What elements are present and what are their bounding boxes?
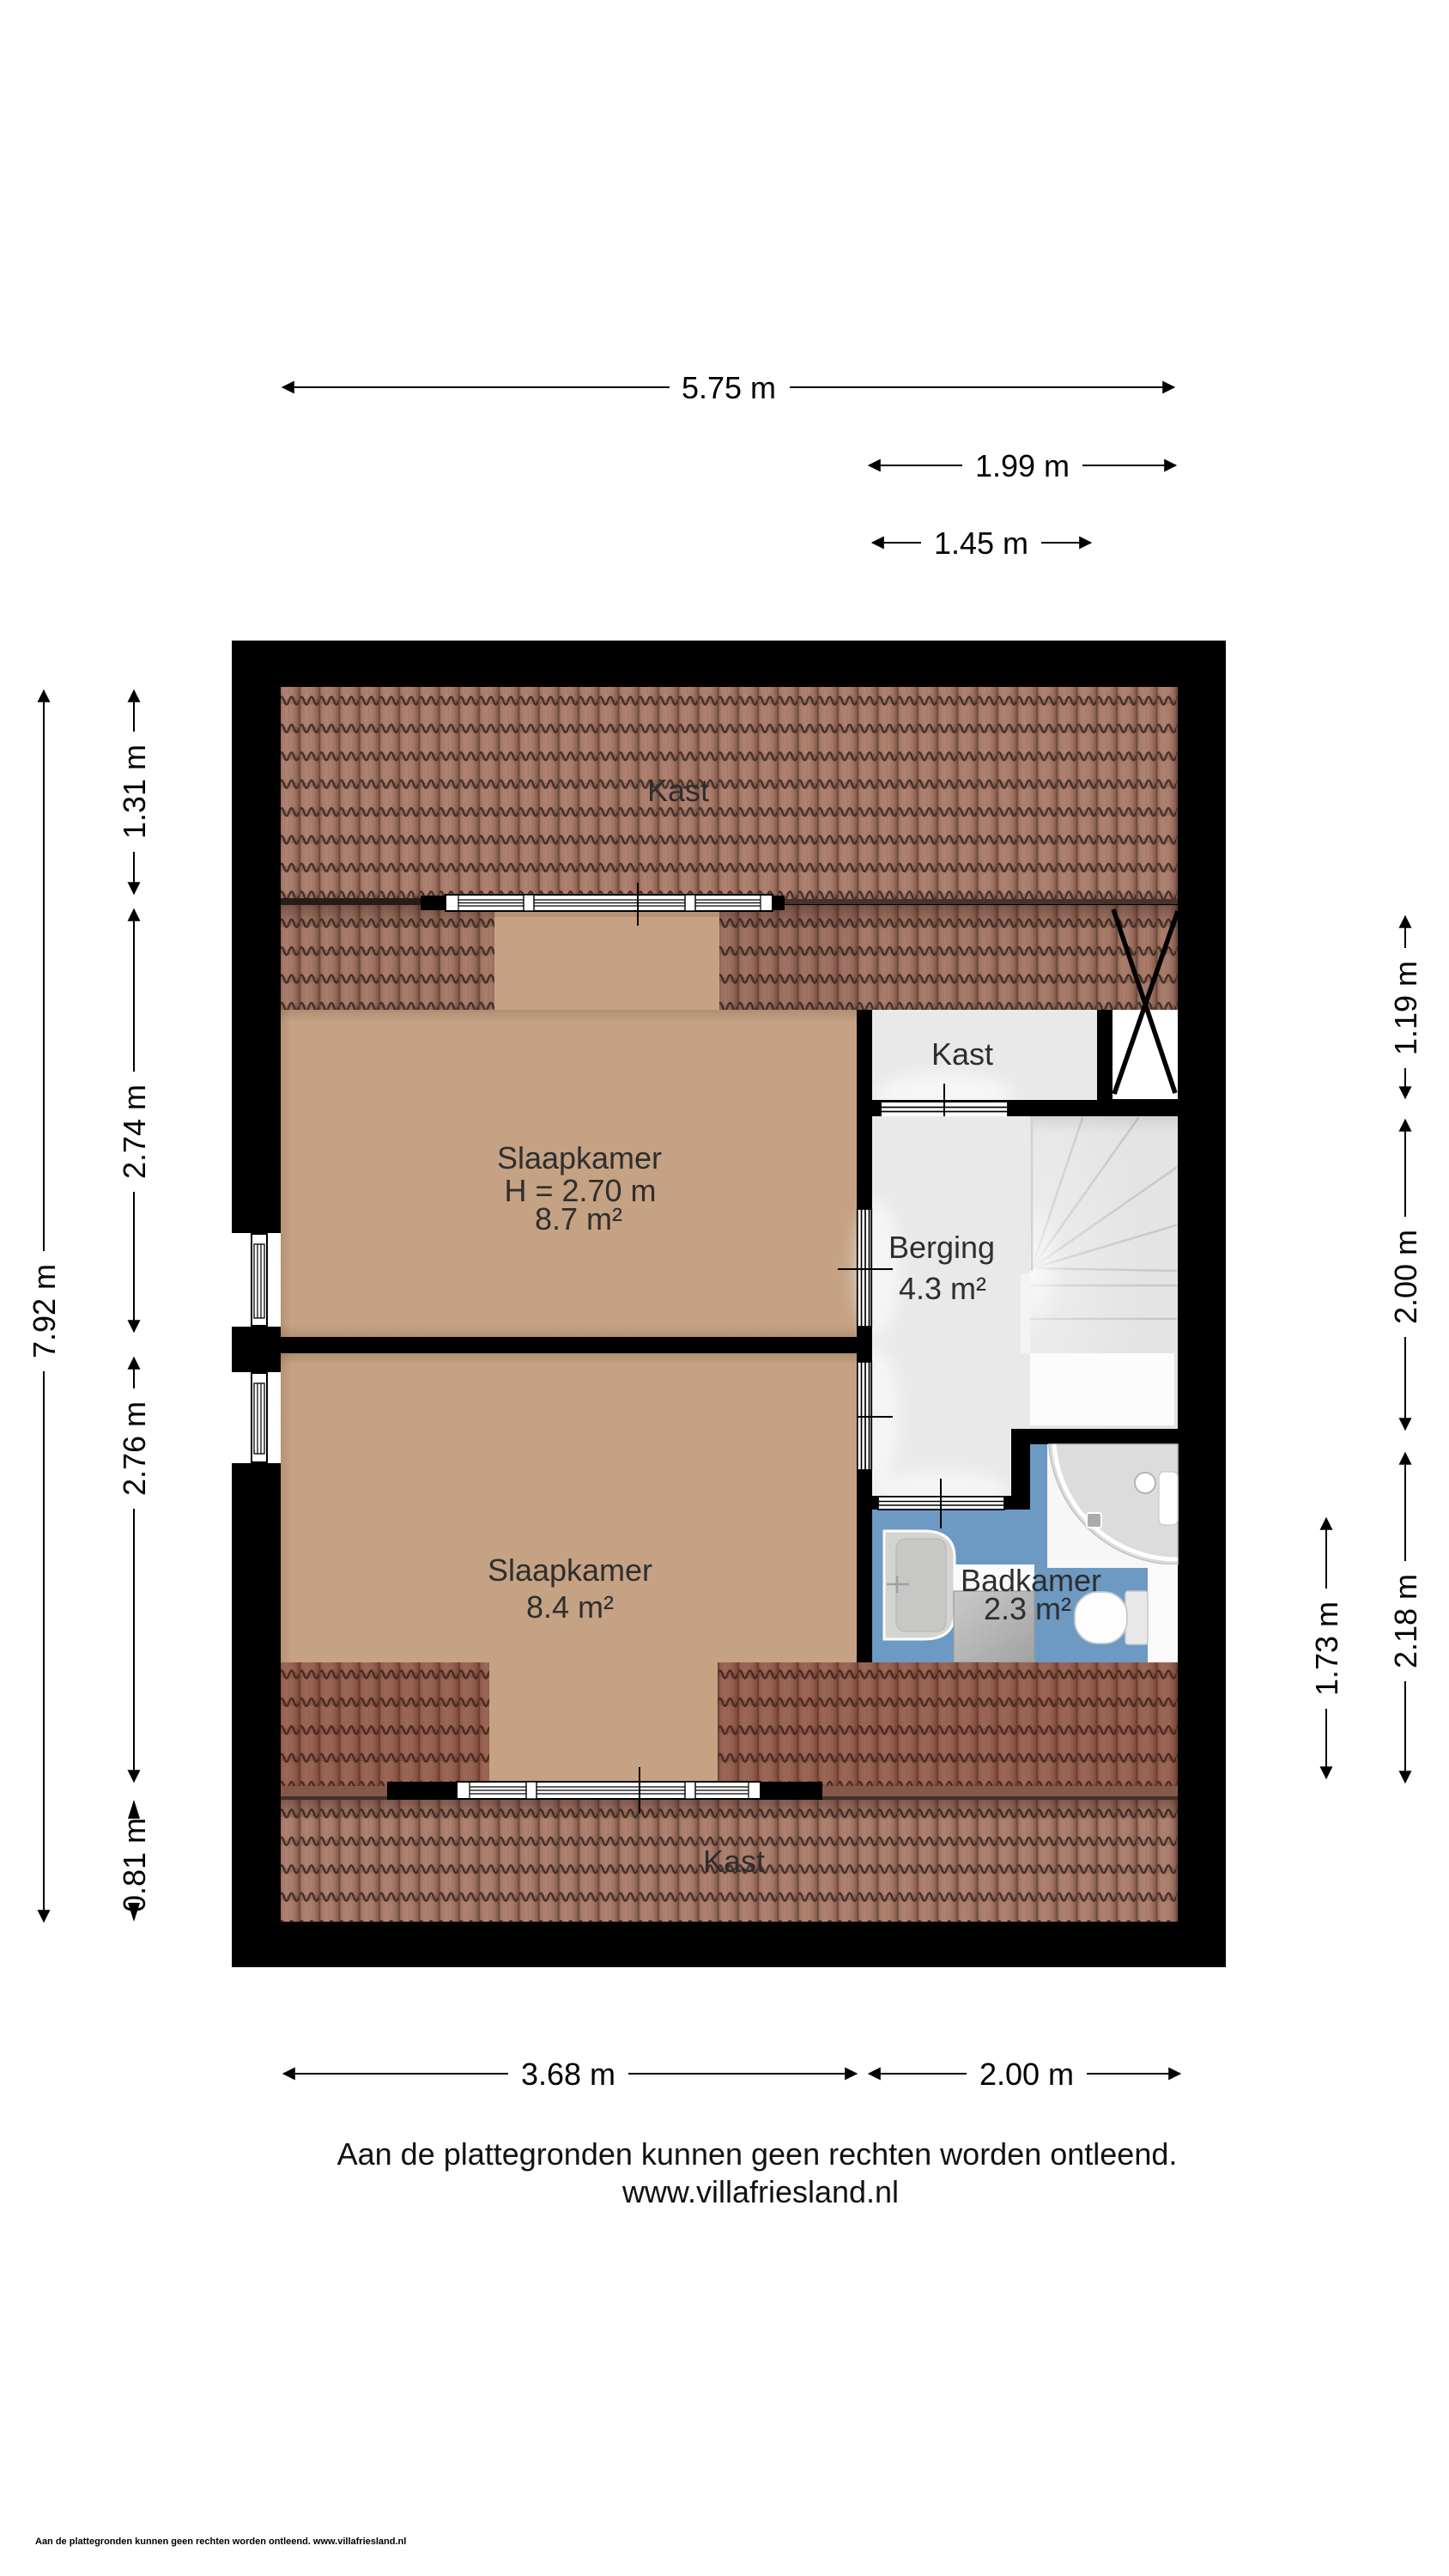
svg-text:www.villafriesland.nl: www.villafriesland.nl (621, 2174, 899, 2209)
svg-text:2.3 m²: 2.3 m² (984, 1591, 1071, 1626)
svg-text:5.75 m: 5.75 m (682, 370, 776, 405)
svg-text:1.31 m: 1.31 m (117, 744, 152, 839)
svg-text:1.19 m: 1.19 m (1388, 961, 1423, 1055)
svg-text:2.18 m: 2.18 m (1388, 1574, 1423, 1668)
svg-text:Berging: Berging (888, 1230, 995, 1265)
svg-text:1.45 m: 1.45 m (934, 526, 1028, 561)
svg-text:0.81 m: 0.81 m (117, 1818, 152, 1912)
svg-text:1.73 m: 1.73 m (1309, 1601, 1344, 1696)
svg-text:8.7 m²: 8.7 m² (535, 1201, 622, 1236)
svg-text:Aan de plattegronden kunnen ge: Aan de plattegronden kunnen geen rechten… (337, 2136, 1178, 2172)
svg-text:Kast: Kast (703, 1844, 765, 1879)
svg-text:Slaapkamer: Slaapkamer (497, 1140, 662, 1176)
svg-text:8.4 m²: 8.4 m² (526, 1589, 614, 1625)
svg-text:Kast: Kast (931, 1036, 993, 1072)
svg-text:Kast: Kast (647, 773, 709, 808)
svg-text:Slaapkamer: Slaapkamer (488, 1552, 652, 1588)
svg-text:2.00 m: 2.00 m (979, 2057, 1074, 2092)
svg-text:3.68 m: 3.68 m (521, 2057, 615, 2092)
svg-text:2.74 m: 2.74 m (117, 1084, 152, 1179)
svg-text:2.76 m: 2.76 m (117, 1401, 152, 1496)
svg-text:4.3 m²: 4.3 m² (899, 1271, 986, 1306)
svg-text:7.92 m: 7.92 m (27, 1264, 62, 1358)
svg-text:Aan de plattegronden kunnen ge: Aan de plattegronden kunnen geen rechten… (35, 2537, 406, 2547)
svg-text:1.99 m: 1.99 m (975, 448, 1070, 483)
svg-text:2.00 m: 2.00 m (1388, 1230, 1423, 1324)
